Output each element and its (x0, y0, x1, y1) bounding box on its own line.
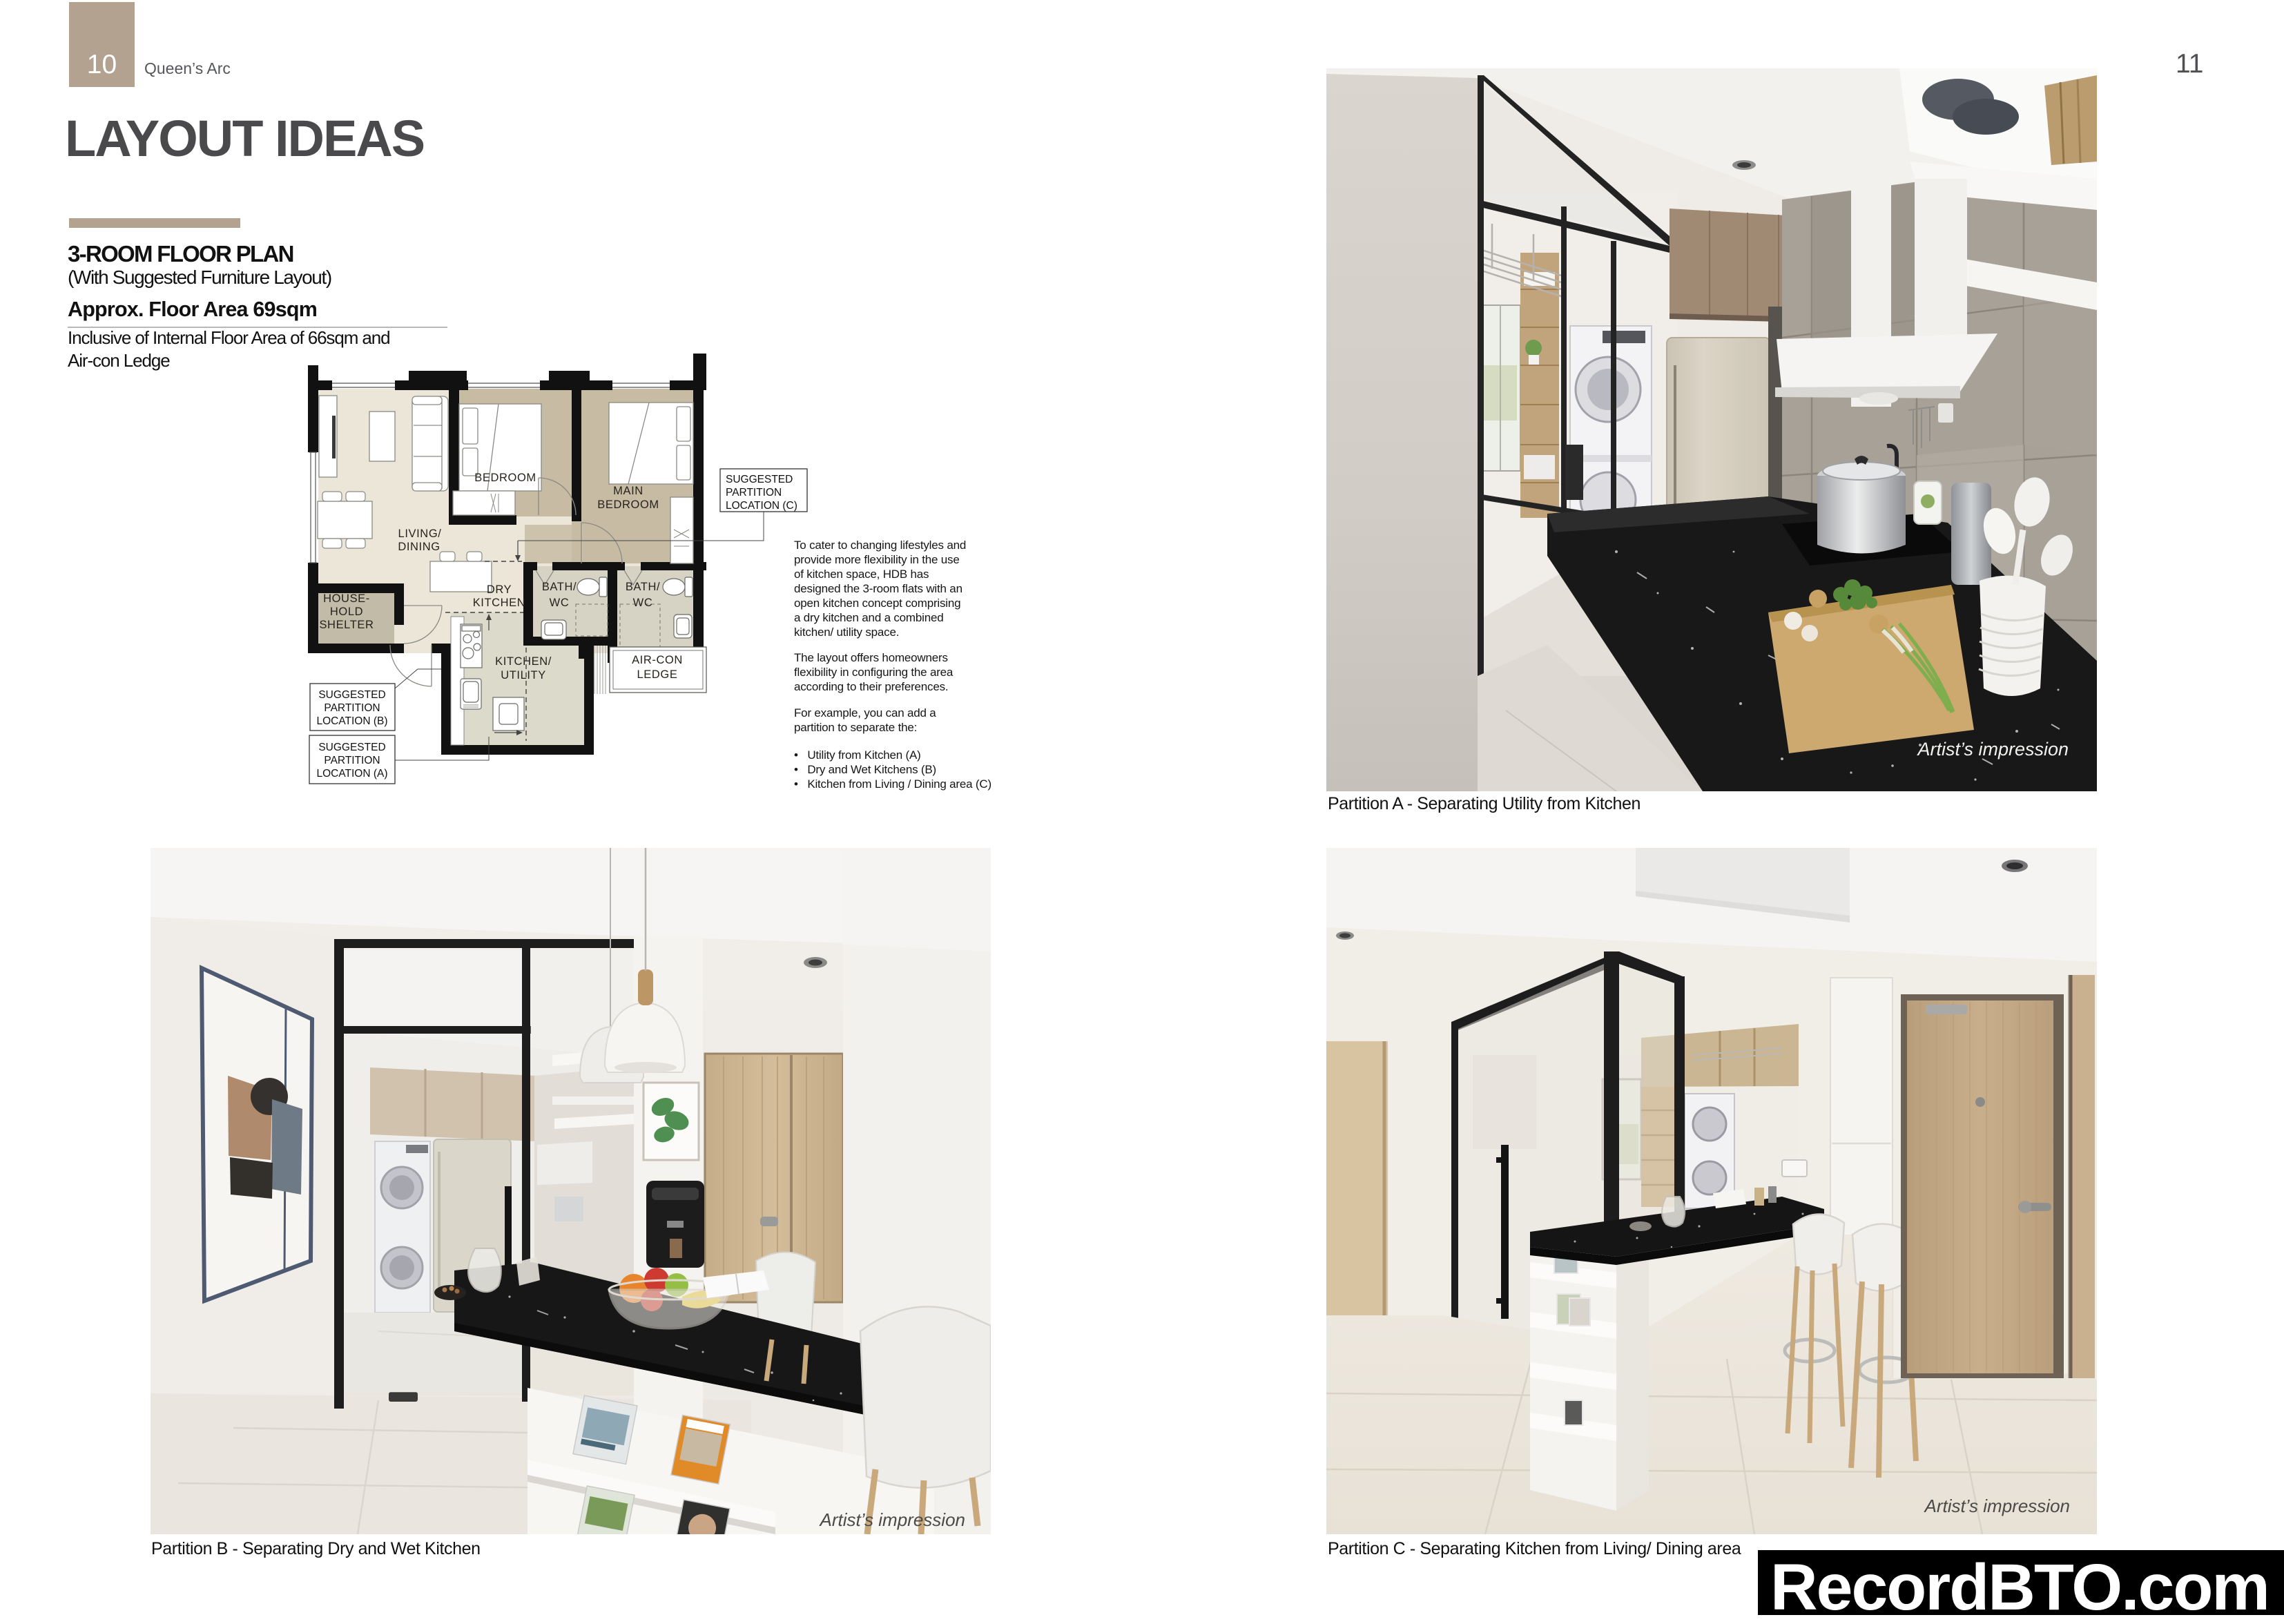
svg-text:Artist’s impression: Artist’s impression (1916, 739, 2069, 760)
svg-text:KITCHEN: KITCHEN (473, 597, 526, 609)
svg-text:DINING: DINING (398, 541, 440, 553)
svg-text:LOCATION (C): LOCATION (C) (726, 500, 797, 512)
svg-text:UTILITY: UTILITY (501, 669, 546, 681)
svg-text:SUGGESTED: SUGGESTED (726, 474, 793, 485)
svg-text:PARTITION: PARTITION (726, 487, 782, 499)
svg-text:BEDROOM: BEDROOM (597, 499, 659, 511)
svg-text:Artist’s impression: Artist’s impression (819, 1509, 965, 1530)
svg-text:WC: WC (550, 597, 570, 609)
svg-text:HOUSE-: HOUSE- (323, 592, 370, 605)
svg-text:HOLD: HOLD (330, 606, 363, 618)
svg-text:KITCHEN/: KITCHEN/ (495, 655, 552, 668)
svg-text:LOCATION (B): LOCATION (B) (316, 715, 387, 727)
svg-text:SUGGESTED: SUGGESTED (318, 742, 385, 753)
svg-text:WC: WC (633, 597, 653, 609)
svg-text:SHELTER: SHELTER (319, 619, 374, 631)
svg-text:SUGGESTED: SUGGESTED (318, 689, 385, 701)
svg-text:BATH/: BATH/ (542, 581, 577, 593)
svg-text:BEDROOM: BEDROOM (474, 472, 536, 484)
svg-text:PARTITION: PARTITION (324, 702, 380, 714)
svg-text:Artist’s impression: Artist’s impression (1924, 1496, 2070, 1516)
svg-text:DRY: DRY (487, 583, 512, 596)
svg-text:LOCATION (A): LOCATION (A) (316, 768, 387, 780)
svg-text:BATH/: BATH/ (626, 581, 660, 593)
svg-text:PARTITION: PARTITION (324, 755, 380, 766)
svg-text:AIR-CON: AIR-CON (632, 654, 683, 666)
svg-text:LEDGE: LEDGE (637, 668, 678, 681)
svg-text:LIVING/: LIVING/ (398, 528, 442, 540)
svg-text:MAIN: MAIN (613, 485, 643, 497)
